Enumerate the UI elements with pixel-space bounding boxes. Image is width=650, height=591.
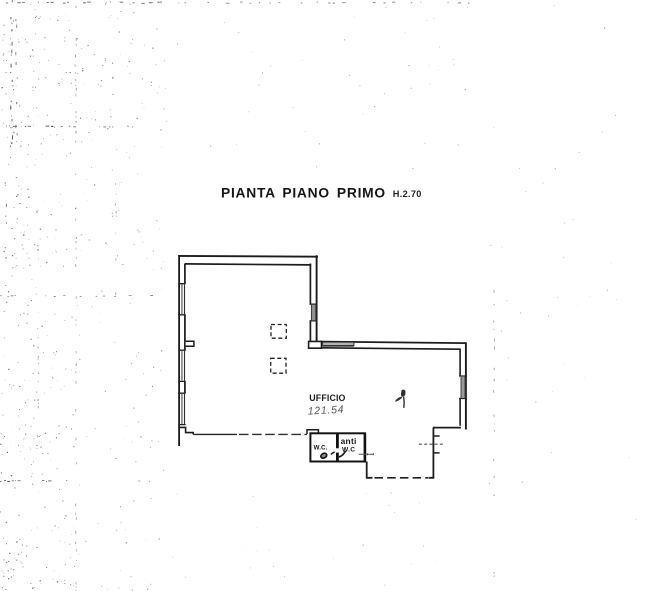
svg-text:W.C: W.C (342, 447, 355, 454)
svg-text:121.54: 121.54 (307, 404, 344, 418)
svg-text:UFFICIO: UFFICIO (309, 393, 345, 403)
svg-text:anti: anti (341, 436, 357, 446)
svg-text:H.2.70: H.2.70 (393, 189, 422, 199)
svg-text:W.C.: W.C. (314, 444, 328, 451)
svg-text:PIANTA PIANO PRIMO: PIANTA PIANO PRIMO (221, 186, 386, 201)
